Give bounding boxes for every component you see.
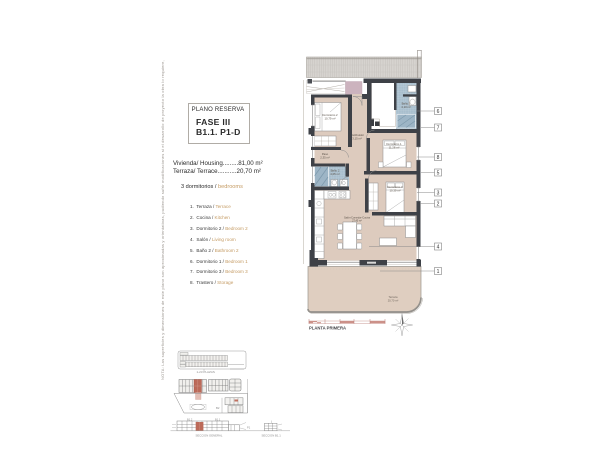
svg-text:3: 3 [437,191,440,197]
svg-text:2: 2 [437,202,440,208]
svg-text:8: 8 [437,155,440,161]
svg-text:4,05 m²: 4,05 m² [330,172,340,176]
svg-text:6: 6 [437,109,440,115]
svg-text:5: 5 [437,171,440,177]
svg-text:B1.1: B1.1 [215,417,221,421]
svg-text:1: 1 [437,269,440,275]
svg-text:10,79 m²: 10,79 m² [324,117,335,121]
svg-text:20,70 m²: 20,70 m² [388,299,399,303]
svg-text:B2: B2 [216,406,220,410]
svg-text:7: 7 [437,126,440,132]
svg-text:PLANTA PRIMERA: PLANTA PRIMERA [309,326,346,331]
svg-text:P1: P1 [247,426,251,430]
svg-text:2,35 m²: 2,35 m² [320,156,330,160]
svg-text:SECCION GENERAL: SECCION GENERAL [196,434,223,438]
svg-text:11,28 m²: 11,28 m² [389,146,400,150]
svg-text:1-23 PLAZAS: 1-23 PLAZAS [197,370,215,374]
svg-text:4,10 m²: 4,10 m² [401,105,411,109]
svg-text:SECCION B1.1: SECCION B1.1 [262,434,282,438]
svg-text:3,15 m²: 3,15 m² [352,137,362,141]
svg-text:B1.2: B1.2 [187,417,193,421]
svg-text:10,39 m²: 10,39 m² [389,189,400,193]
svg-text:4: 4 [437,245,440,251]
svg-text:Terraza: Terraza [389,295,398,299]
